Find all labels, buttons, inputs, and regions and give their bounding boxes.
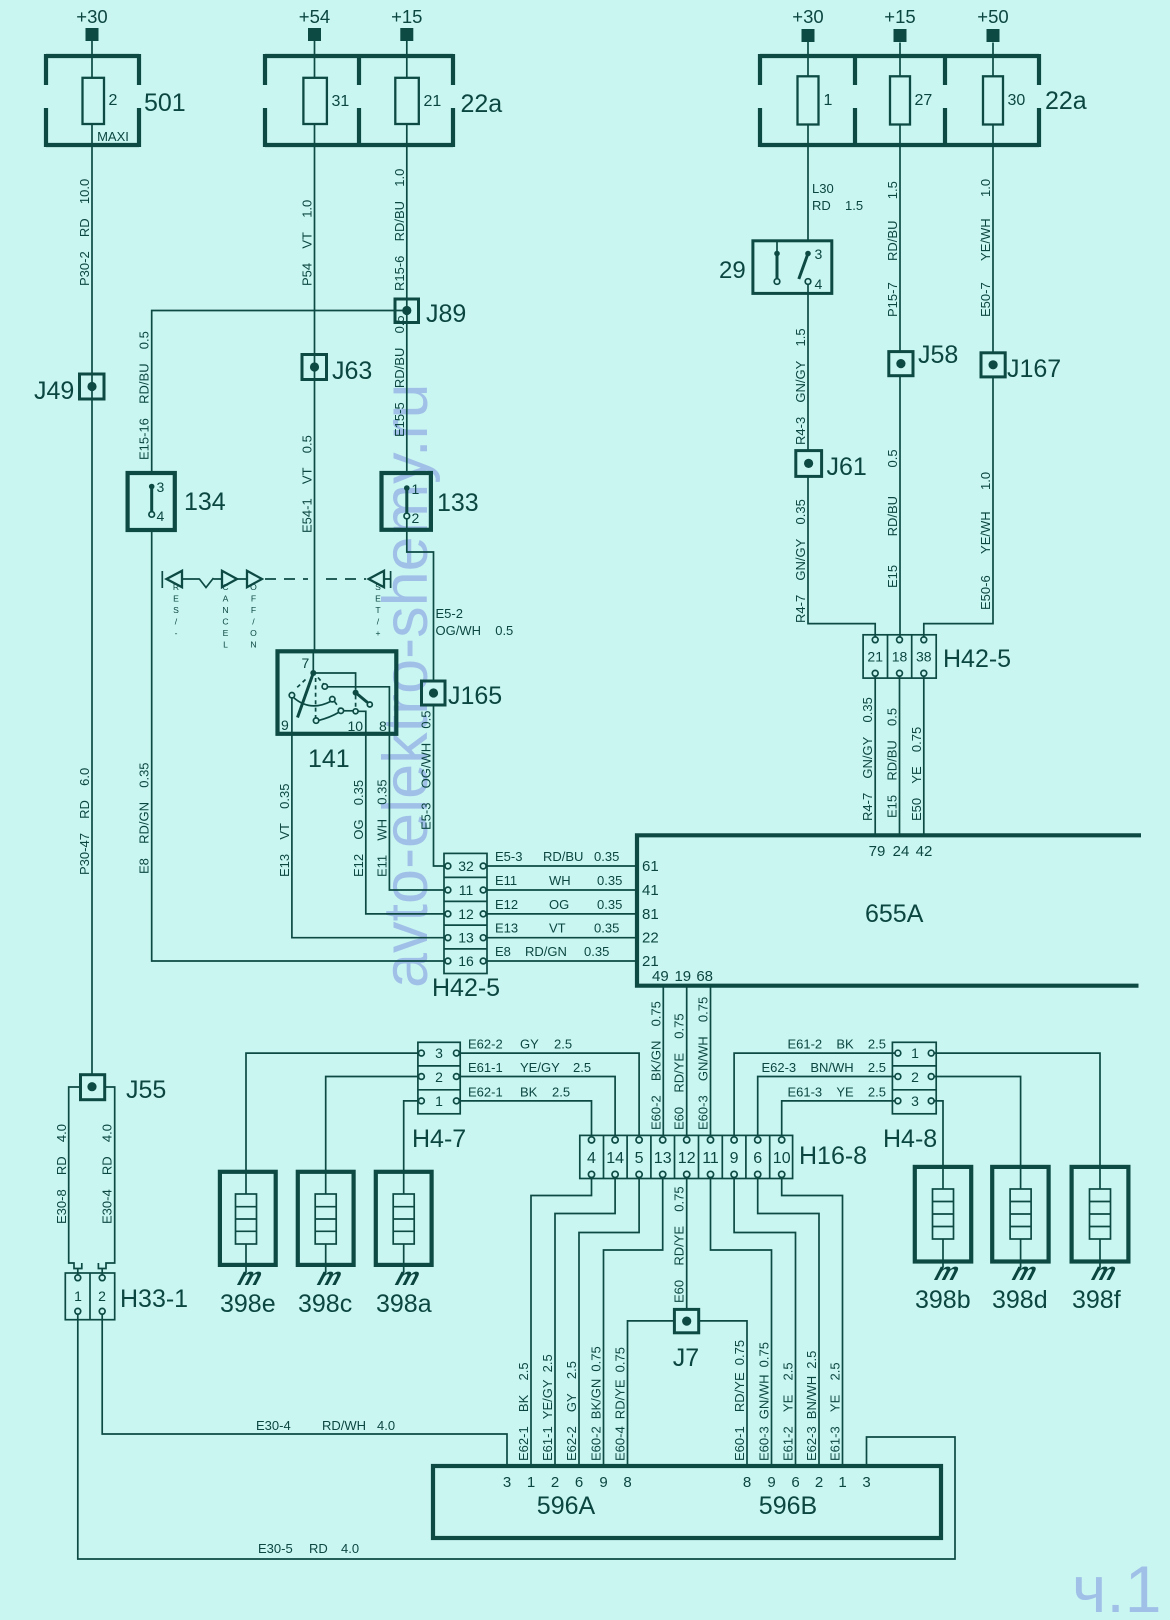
svg-text:2: 2 [911, 1069, 919, 1085]
svg-text:5: 5 [635, 1150, 644, 1167]
svg-text:398c: 398c [298, 1290, 352, 1318]
svg-text:J89: J89 [426, 300, 466, 328]
svg-text:22: 22 [642, 930, 659, 947]
svg-text:12: 12 [458, 906, 474, 922]
svg-text:30: 30 [1008, 92, 1026, 109]
svg-text:61: 61 [642, 858, 659, 875]
svg-text:38: 38 [916, 649, 932, 665]
svg-text:21: 21 [867, 649, 883, 665]
svg-text:E62-1BK2.5: E62-1BK2.5 [468, 1085, 570, 1100]
svg-text:655A: 655A [865, 900, 924, 928]
svg-text:H16-8: H16-8 [799, 1142, 867, 1170]
svg-text:E60-2 BK/GN 0.75: E60-2 BK/GN 0.75 [589, 1346, 604, 1461]
svg-text:12: 12 [678, 1150, 696, 1167]
svg-text:J49: J49 [34, 377, 74, 405]
svg-text:2: 2 [435, 1069, 443, 1085]
svg-text:1: 1 [911, 1045, 919, 1061]
svg-text:E54-1 VT 0.5: E54-1 VT 0.5 [300, 435, 315, 533]
svg-text:3: 3 [503, 1474, 511, 1491]
svg-text:E5-2: E5-2 [436, 606, 463, 621]
svg-text:E61-3 YE 2.5: E61-3 YE 2.5 [787, 1085, 886, 1100]
svg-text:R4-7 GN/GY 0.35: R4-7 GN/GY 0.35 [793, 499, 808, 623]
svg-text:1: 1 [824, 92, 833, 109]
svg-text:14: 14 [606, 1150, 624, 1167]
svg-text:H42-5: H42-5 [943, 645, 1011, 673]
svg-text:P15-7 RD/BU 1.5: P15-7 RD/BU 1.5 [885, 181, 900, 317]
svg-text:2: 2 [551, 1474, 559, 1491]
svg-text:J165: J165 [448, 682, 502, 710]
svg-text:6: 6 [575, 1474, 583, 1491]
svg-text:4: 4 [815, 276, 823, 292]
svg-text:49: 49 [652, 968, 669, 985]
svg-text:27: 27 [915, 92, 933, 109]
svg-text:398e: 398e [220, 1290, 276, 1318]
svg-text:10: 10 [773, 1150, 791, 1167]
svg-text:398d: 398d [992, 1286, 1048, 1314]
svg-text:22a: 22a [1045, 87, 1087, 115]
svg-text:E50 YE 0.75: E50 YE 0.75 [909, 727, 924, 821]
svg-text:2: 2 [412, 510, 420, 526]
svg-text:E60-4 RD/YE 0.75: E60-4 RD/YE 0.75 [613, 1347, 628, 1461]
svg-text:3: 3 [435, 1045, 443, 1061]
svg-text:11: 11 [459, 882, 474, 898]
svg-text:1: 1 [435, 1093, 443, 1109]
svg-text:18: 18 [892, 649, 908, 665]
svg-text:398f: 398f [1072, 1286, 1121, 1314]
svg-text:E13VT0.35: E13VT0.35 [495, 921, 619, 936]
svg-text:501: 501 [144, 89, 186, 117]
svg-text:E62-3 BN/WH 2.5: E62-3 BN/WH 2.5 [761, 1060, 886, 1075]
svg-text:E50-7 YE/WH 1.0: E50-7 YE/WH 1.0 [978, 179, 993, 317]
svg-text:16: 16 [458, 953, 474, 969]
svg-text:E61-2 YE 2.5: E61-2 YE 2.5 [781, 1362, 796, 1461]
svg-text:E60 RD/YE 0.75: E60 RD/YE 0.75 [672, 1013, 687, 1130]
svg-text:1: 1 [74, 1288, 82, 1304]
svg-text:4: 4 [587, 1150, 596, 1167]
svg-text:596B: 596B [759, 1492, 817, 1520]
svg-text:E15 RD/BU 0.5: E15 RD/BU 0.5 [885, 449, 900, 588]
svg-text:19: 19 [674, 968, 691, 985]
svg-text:3: 3 [157, 479, 165, 495]
svg-text:E62-2GY2.5: E62-2GY2.5 [468, 1037, 572, 1052]
svg-text:J58: J58 [918, 341, 958, 369]
svg-text:E60-3 GN/WH 0.75: E60-3 GN/WH 0.75 [696, 997, 711, 1130]
svg-text:E15-16 RD/BU 0.5: E15-16 RD/BU 0.5 [137, 331, 152, 460]
svg-text:24: 24 [893, 843, 910, 860]
svg-text:P30-47 RD 6.0: P30-47 RD 6.0 [77, 768, 92, 875]
svg-text:E61-1YE/GY2.5: E61-1YE/GY2.5 [468, 1060, 591, 1075]
svg-text:2: 2 [109, 92, 118, 109]
svg-text:+30: +30 [792, 6, 823, 27]
svg-text:H33-1: H33-1 [120, 1285, 188, 1313]
svg-text:E62-3 BN/WH 2.5: E62-3 BN/WH 2.5 [804, 1351, 819, 1461]
svg-text:H4-8: H4-8 [883, 1125, 937, 1153]
svg-text:E62-1 BK 2.5: E62-1 BK 2.5 [516, 1362, 531, 1461]
svg-text:J55: J55 [126, 1076, 166, 1104]
svg-text:8: 8 [743, 1474, 751, 1491]
svg-text:+15: +15 [884, 6, 915, 27]
svg-text:596A: 596A [537, 1492, 596, 1520]
svg-text:42: 42 [916, 843, 933, 860]
svg-text:9: 9 [767, 1474, 775, 1491]
svg-text:2: 2 [815, 1474, 823, 1491]
svg-text:R15-6 RD/BU 1.0: R15-6 RD/BU 1.0 [392, 169, 407, 291]
svg-text:E12 OG 0.35: E12 OG 0.35 [351, 780, 366, 877]
svg-text:3: 3 [911, 1093, 919, 1109]
svg-text:29: 29 [719, 257, 746, 284]
svg-text:E5-3 OG/WH 0.5: E5-3 OG/WH 0.5 [419, 711, 434, 830]
svg-text:+30: +30 [76, 6, 107, 27]
svg-text:ч.1: ч.1 [1072, 1552, 1161, 1620]
svg-text:J63: J63 [332, 357, 372, 385]
svg-text:E15-5 RD/BU 0.5: E15-5 RD/BU 0.5 [392, 315, 407, 437]
svg-text:1: 1 [527, 1474, 535, 1491]
svg-text:E15 RD/BU 0.5: E15 RD/BU 0.5 [885, 708, 900, 818]
svg-text:3: 3 [862, 1474, 870, 1491]
svg-text:E60-2 BK/GN 0.75: E60-2 BK/GN 0.75 [648, 1001, 663, 1130]
svg-text:OG/WH 0.5: OG/WH 0.5 [436, 623, 514, 638]
svg-text:E62-2 GY 2.5: E62-2 GY 2.5 [564, 1361, 579, 1461]
svg-text:398a: 398a [376, 1290, 432, 1318]
svg-text:13: 13 [458, 930, 474, 946]
svg-text:9: 9 [281, 717, 289, 733]
svg-text:11: 11 [702, 1150, 719, 1167]
svg-text:SET/+: SET/+ [375, 582, 381, 638]
svg-text:E50-6 YE/WH 1.0: E50-6 YE/WH 1.0 [978, 472, 993, 610]
svg-text:E60 RD/YE 0.75: E60 RD/YE 0.75 [672, 1186, 687, 1303]
svg-text:9: 9 [730, 1150, 739, 1167]
svg-text:R4-7 GN/GY 0.35: R4-7 GN/GY 0.35 [860, 697, 875, 821]
svg-text:E12OG0.35: E12OG0.35 [495, 897, 622, 912]
svg-text:H4-7: H4-7 [412, 1125, 466, 1153]
svg-text:E13 VT 0.35: E13 VT 0.35 [277, 784, 292, 878]
svg-text:4: 4 [157, 508, 165, 524]
svg-text:7: 7 [302, 655, 310, 671]
svg-text:E5-3RD/BU0.35: E5-3RD/BU0.35 [495, 849, 619, 864]
svg-text:P54 VT 1.0: P54 VT 1.0 [300, 200, 315, 286]
svg-text:+15: +15 [391, 6, 422, 27]
svg-text:79: 79 [869, 843, 886, 860]
svg-text:8: 8 [623, 1474, 631, 1491]
svg-text:R4-3 GN/GY 1.5: R4-3 GN/GY 1.5 [793, 328, 808, 445]
svg-text:E11WH0.35: E11WH0.35 [495, 873, 622, 888]
svg-text:E61-3 YE 2.5: E61-3 YE 2.5 [828, 1362, 843, 1461]
svg-text:E8 RD/GN 0.35: E8 RD/GN 0.35 [137, 762, 152, 874]
svg-text:J61: J61 [827, 453, 867, 481]
svg-text:41: 41 [642, 882, 659, 899]
svg-text:L30: L30 [812, 181, 834, 196]
svg-text:J7: J7 [673, 1344, 699, 1372]
svg-text:2: 2 [98, 1288, 106, 1304]
svg-text:21: 21 [424, 93, 442, 110]
svg-text:E60-1 RD/YE 0.75: E60-1 RD/YE 0.75 [732, 1340, 747, 1461]
svg-text:E30-5RD4.0: E30-5RD4.0 [258, 1541, 359, 1556]
svg-text:6: 6 [791, 1474, 799, 1491]
svg-text:E60-3 GN/WH 0.75: E60-3 GN/WH 0.75 [757, 1342, 772, 1461]
svg-text:J167: J167 [1007, 355, 1061, 383]
svg-text:MAXI: MAXI [97, 129, 129, 144]
svg-text:E30-4 RD 4.0: E30-4 RD 4.0 [100, 1124, 115, 1224]
svg-text:22a: 22a [461, 90, 503, 118]
svg-text:E61-1 YE/GY 2.5: E61-1 YE/GY 2.5 [540, 1354, 555, 1461]
svg-text:E11 WH 0.35: E11 WH 0.35 [374, 779, 389, 877]
svg-text:141: 141 [308, 745, 350, 773]
svg-text:10: 10 [348, 718, 364, 734]
svg-text:E61-2 BK 2.5: E61-2 BK 2.5 [787, 1037, 886, 1052]
svg-text:32: 32 [458, 858, 474, 874]
svg-text:81: 81 [642, 906, 659, 923]
svg-text:RD 1.5: RD 1.5 [812, 198, 863, 213]
svg-text:8: 8 [379, 718, 387, 734]
svg-text:P30-2 RD 10.0: P30-2 RD 10.0 [77, 179, 92, 286]
svg-text:1: 1 [412, 481, 420, 497]
svg-text:13: 13 [654, 1150, 672, 1167]
svg-text:1: 1 [838, 1474, 846, 1491]
svg-text:E30-8 RD 4.0: E30-8 RD 4.0 [54, 1124, 69, 1224]
svg-text:3: 3 [815, 246, 823, 262]
svg-text:9: 9 [599, 1474, 607, 1491]
svg-text:398b: 398b [915, 1286, 971, 1314]
svg-text:+50: +50 [977, 6, 1008, 27]
svg-text:134: 134 [184, 488, 226, 516]
svg-text:H42-5: H42-5 [432, 974, 500, 1002]
svg-text:31: 31 [332, 93, 350, 110]
svg-text:6: 6 [753, 1150, 762, 1167]
svg-text:68: 68 [696, 968, 713, 985]
svg-text:133: 133 [437, 489, 479, 517]
svg-text:+54: +54 [299, 6, 330, 27]
